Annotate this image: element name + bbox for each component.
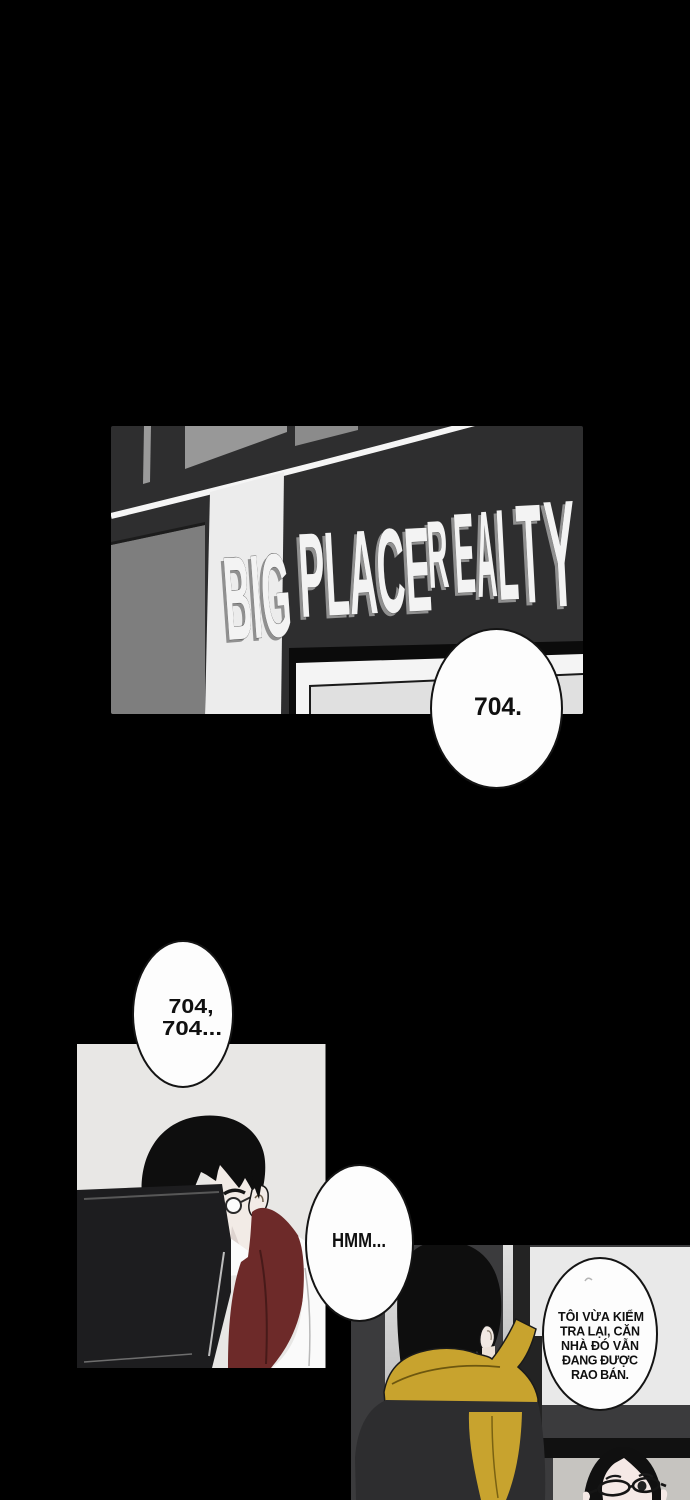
svg-text:TRA LẠI, CĂN: TRA LẠI, CĂN xyxy=(560,1324,640,1339)
svg-text:704...: 704... xyxy=(162,1018,222,1040)
svg-text:ĐANG ĐƯỢC: ĐANG ĐƯỢC xyxy=(562,1354,638,1368)
svg-text:RAO BÁN.: RAO BÁN. xyxy=(571,1367,629,1382)
svg-text:PLACE: PLACE xyxy=(295,501,434,642)
svg-text:TÔI VỪA KIỂM: TÔI VỪA KIỂM xyxy=(558,1309,644,1324)
svg-text:HMM...: HMM... xyxy=(332,1230,386,1252)
svg-text:704,: 704, xyxy=(169,996,214,1018)
svg-text:704.: 704. xyxy=(474,693,522,721)
svg-text:BIG: BIG xyxy=(219,528,295,666)
svg-text:NHÀ ĐÓ VẪN: NHÀ ĐÓ VẪN xyxy=(561,1338,639,1353)
